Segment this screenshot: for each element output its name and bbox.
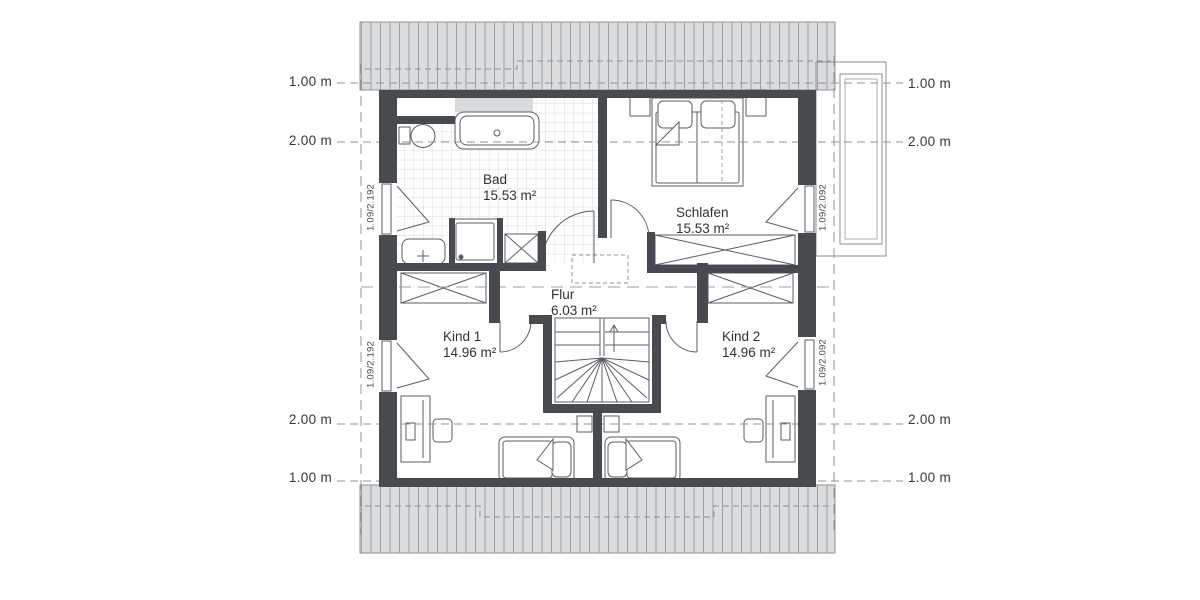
height-label-left-2m-top: 2.00 m [268,133,332,148]
desk-kind1 [401,396,452,462]
bad-niche [397,98,455,116]
window-right-top [805,186,814,232]
room-label-kind1: Kind 1 14.96 m² [443,329,496,361]
height-label-left-1m-top: 1.00 m [268,74,332,89]
room-name: Flur [551,287,597,303]
door-schlafen [611,200,649,238]
room-name: Kind 2 [722,329,775,345]
room-area: 15.53 m² [483,188,536,204]
wall-washer-stub [538,231,546,271]
wall-stair-right [652,315,661,413]
wall-exterior-left [379,235,397,340]
room-name: Kind 1 [443,329,496,345]
window-dim-right-bottom: 1.09/2.092 [818,331,829,395]
height-label-right-2m-bottom: 2.00 m [908,412,972,427]
room-area: 14.96 m² [443,345,496,361]
desk-kind2 [744,396,795,462]
bed-kind1 [499,437,574,482]
bathtub-icon [455,112,539,149]
room-label-kind2: Kind 2 14.96 m² [722,329,775,361]
window-dim-left-top: 1.09/2.192 [366,176,377,240]
room-area: 14.96 m² [722,345,775,361]
wall-stair-left [543,315,552,413]
washer-icon [505,234,538,263]
sink-icon [402,239,445,264]
window-dim-left-bottom: 1.09/2.192 [366,333,377,397]
bathtub-ledge [455,98,533,112]
wall-flur-right [697,263,708,323]
wall-exterior-left [379,392,397,487]
room-area: 15.53 m² [676,221,729,237]
room-label-flur: Flur 6.03 m² [551,287,597,319]
wall-kids-divider [593,404,602,486]
wardrobe-schlafen [655,235,795,265]
roof-hatch-bottom [360,485,835,553]
room-name: Schlafen [676,205,729,221]
wall-bad-niche [397,116,455,124]
height-label-left-1m-bottom: 1.00 m [268,470,332,485]
wall-exterior-right [798,90,816,185]
toilet-icon [399,125,435,148]
staircase [555,318,649,402]
window-left-top [382,184,391,234]
room-area: 6.03 m² [551,303,597,319]
floor-plan-drawing [0,0,1200,600]
stair-direction-arrow [610,325,618,352]
wall-exterior-right [798,390,816,487]
wall-flur-left [489,263,500,323]
window-dim-right-top: 1.09/2.092 [818,176,829,240]
wall-exterior-top [379,90,816,98]
wall-exterior-right [798,233,816,337]
wall-schlafen-bottom [647,265,798,273]
height-label-right-1m-bottom: 1.00 m [908,470,972,485]
wardrobe-kind1 [401,273,486,303]
room-label-schlafen: Schlafen 15.53 m² [676,205,729,237]
room-label-bad: Bad 15.53 m² [483,172,536,204]
door-kind1 [500,321,531,352]
shower-icon [452,219,498,264]
window-right-bottom [805,340,814,389]
window-swing-icon [397,343,429,388]
roof-hatch-top [360,22,835,90]
window-left-bottom [382,341,391,391]
floor-plan: 1.00 m 2.00 m 2.00 m 1.00 m 1.00 m 2.00 … [0,0,1200,600]
window-swing-icon [766,188,798,231]
door-kind2 [666,321,697,352]
wardrobe-kind2 [708,273,793,303]
bed-kind2 [605,437,680,482]
height-label-right-1m-top: 1.00 m [908,76,972,91]
height-label-right-2m-top: 2.00 m [908,134,972,149]
wall-shower-stub [449,218,455,271]
height-label-left-2m-bottom: 2.00 m [268,412,332,427]
wall-bad-schlafen [598,98,607,238]
wall-stub-left [529,315,543,324]
wall-bad-bottom [397,263,546,271]
room-name: Bad [483,172,536,188]
wall-exterior-left [379,90,397,183]
wall-shower-stub [497,218,503,271]
